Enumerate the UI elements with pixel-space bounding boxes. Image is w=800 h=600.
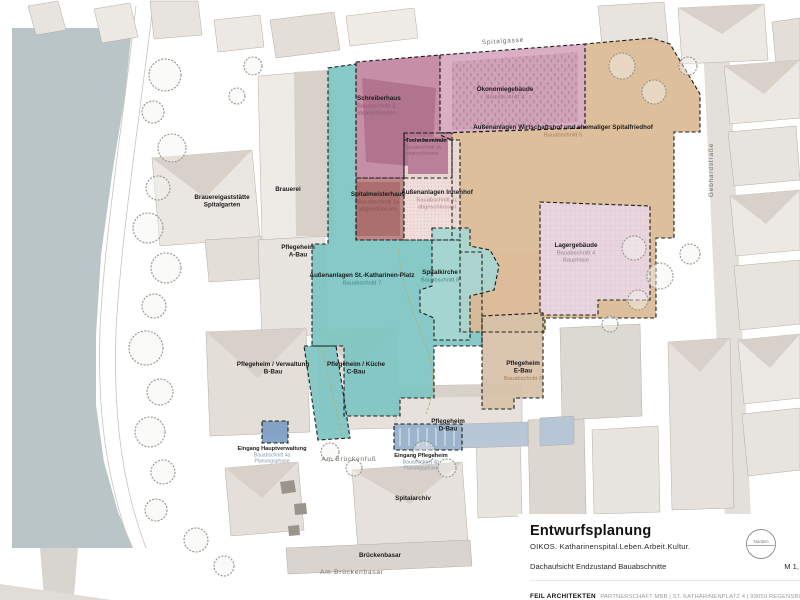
tree — [151, 460, 175, 484]
zone-label-technik: Technikzentrale — [406, 138, 446, 144]
drawing-name-row: Dachaufsicht Endzustand Bauabschnitte M … — [530, 562, 800, 571]
north-indicator: Norden — [744, 526, 778, 560]
tree — [622, 236, 646, 260]
building-label-dbau: Pflegeheim — [431, 418, 465, 425]
building-label-dbau: D-Bau — [439, 426, 458, 433]
firm-name: FEIL ARCHITEKTEN — [530, 593, 596, 600]
zone-label-wirtschaftshof: Außenanlagen Wirtschaftshof und ehemalig… — [473, 124, 654, 131]
building-label-brueckenbasar: Brückenbasar — [359, 552, 402, 559]
building-label-cbau: Pflegeheim / Küche — [327, 361, 386, 368]
zone-sublabel-kirche: Bauabschnitt 8 — [421, 278, 459, 284]
tree — [129, 331, 163, 365]
tree — [145, 499, 167, 521]
street-label-spitalgasse: Spitalgasse — [482, 37, 525, 47]
north-circle — [747, 530, 776, 559]
tree — [158, 134, 186, 162]
zone-label-katharinen: Außenanlagen St.-Katharinen-Platz — [310, 272, 415, 279]
zone-sublabel-spitalmeister: abgeschlossen — [359, 207, 398, 213]
building — [742, 408, 800, 476]
zone-label-kirche: Spitalkirche — [422, 269, 458, 276]
tree — [647, 263, 673, 289]
building-label-brauerei: Brauerei — [275, 186, 301, 193]
drawing-name: Dachaufsicht Endzustand Bauabschnitte — [530, 562, 666, 571]
building — [346, 8, 418, 46]
street-label-gebhardstrasse: Gebhardstraße — [708, 143, 715, 197]
tree — [609, 53, 635, 79]
building-label-brauereigaststaette: Brauereigaststätte — [194, 194, 250, 201]
building-label-bbau: Pflegeheim / Verwaltung — [237, 361, 310, 368]
zone-sublabel-schreiberhaus: Bauabschnitt 2 — [357, 104, 395, 110]
building — [270, 12, 340, 58]
zone-label-oekonomie: Ökonomiegebäude — [477, 84, 534, 93]
zone-sublabel-katharinen: Bauabschnitt 7 — [343, 281, 381, 287]
tree — [184, 528, 208, 552]
tree — [244, 57, 262, 75]
zone-label-innenhof: Außenanlagen Innenhof — [401, 189, 474, 196]
site-plan-drawing: Außenanlagen St.-Katharinen-PlatzBauabsc… — [0, 0, 800, 600]
zone-label-eingang_haupt: Eingang Hauptverwaltung — [238, 446, 308, 452]
zone-sublabel-eingang_haupt: Planungsphase — [254, 459, 289, 465]
tree — [146, 176, 170, 200]
tree — [147, 379, 173, 405]
tree — [642, 80, 666, 104]
zone-sublabel-innenhof: abgeschlossen — [418, 205, 457, 211]
tree — [679, 57, 697, 75]
zone-sublabel-ebau: Bauabschnitt 6 — [504, 376, 542, 382]
building — [734, 260, 800, 330]
zone-label-lager: Lagergebäude — [554, 242, 598, 249]
building — [592, 426, 660, 514]
tree — [214, 556, 234, 576]
building-label-abau: Pflegeheim — [281, 244, 315, 251]
building — [462, 422, 528, 448]
building — [540, 416, 574, 446]
firm-details: PARTNERSCHAFT MBB | ST. KATHARINENPLATZ … — [600, 594, 800, 600]
zone-eingang_haupt — [262, 421, 288, 443]
zone-label-ebau: Pflegeheim — [506, 360, 540, 367]
utility-structure — [294, 503, 307, 515]
tree — [438, 459, 456, 477]
zone-sublabel-oekonomie: Bauabschnitt 3 — [486, 95, 524, 101]
building-label-spitalarchiv: Spitalarchiv — [395, 495, 431, 502]
zone-sublabel-spitalmeister: Bauabschnitt 1a — [357, 200, 399, 206]
building-label-abau: A-Bau — [289, 252, 308, 259]
title-block: Entwurfsplanung OIKOS. Katharinenspital.… — [518, 514, 800, 600]
building — [728, 126, 800, 186]
tree — [229, 88, 245, 104]
north-label: Norden — [753, 539, 769, 544]
tree — [149, 59, 181, 91]
tree — [135, 417, 165, 447]
zone-sublabel-schreiberhaus: abgeschlossen — [357, 111, 396, 117]
scale-label: M 1, — [784, 562, 799, 571]
ground-patch — [40, 548, 78, 597]
street-label-am_brueckenbasar: Am Brückenbasar — [320, 569, 384, 576]
tree — [142, 294, 166, 318]
firm-row: FEIL ARCHITEKTEN PARTNERSCHAFT MBB | ST.… — [530, 580, 800, 600]
river — [12, 28, 133, 548]
building-label-brauereigaststaette: Spitalgarten — [204, 202, 241, 209]
building — [150, 1, 202, 39]
tree — [142, 101, 164, 123]
building — [214, 15, 264, 52]
tree — [151, 253, 181, 283]
zone-sublabel-lager: Bauphase — [563, 258, 589, 264]
zone-sublabel-technik: Bauabschnitt 1b — [406, 145, 441, 151]
zone-sublabel-lager: Bauabschnitt 4 — [557, 251, 596, 257]
zone-sublabel-innenhof: Bauabschnitt 1c — [416, 198, 457, 204]
building-label-cbau: C-Bau — [347, 369, 366, 376]
site-plan-page: Außenanlagen St.-Katharinen-PlatzBauabsc… — [0, 0, 800, 600]
tree — [628, 290, 648, 310]
zone-sublabel-wirtschaftshof: Bauabschnitt 5 — [544, 133, 582, 139]
tree — [133, 213, 163, 243]
tree — [680, 244, 700, 264]
building-label-bbau: B-Bau — [264, 369, 283, 376]
tree — [602, 316, 618, 332]
utility-structure — [280, 480, 296, 494]
building — [560, 324, 642, 420]
zone-sublabel-eingang_pflege: Planungsphase — [403, 466, 438, 472]
zone-label-schreiberhaus: Schreiberhaus — [357, 95, 401, 102]
street-label-am_brueckenfuss: Am Brückenfuß — [321, 456, 376, 463]
zone-label-spitalmeister: Spitalmeisterhaus — [351, 191, 406, 198]
utility-structure — [288, 525, 300, 536]
zone-label-eingang_pflege: Eingang Pflegeheim — [394, 453, 447, 459]
building — [94, 3, 138, 43]
zone-label-ebau: E-Bau — [514, 368, 532, 375]
zone-sublabel-technik: abgeschlossen — [406, 151, 439, 157]
